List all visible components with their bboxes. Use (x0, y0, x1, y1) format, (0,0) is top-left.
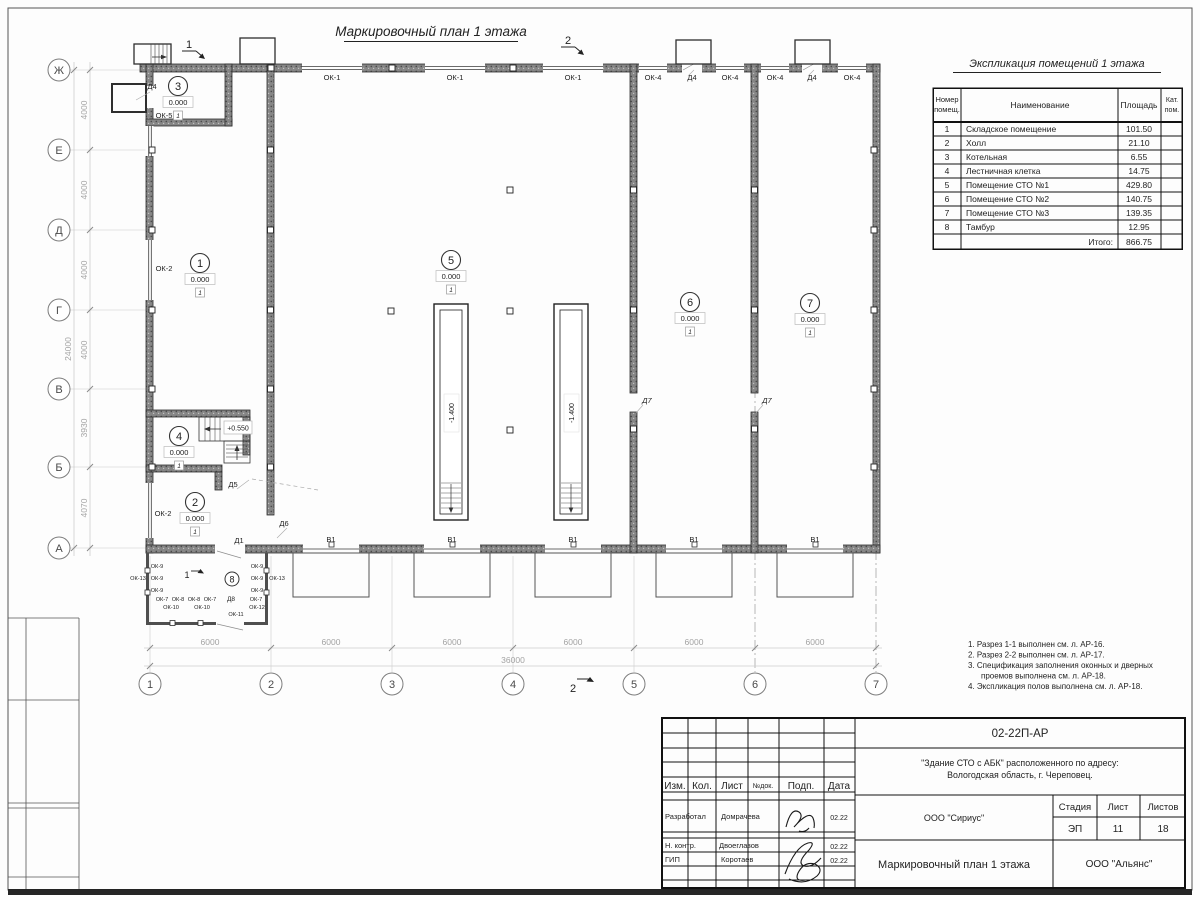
svg-text:Г: Г (56, 305, 62, 317)
room-6-marker: 6 0.000 1 (675, 293, 705, 337)
dim-bay: 6000 (201, 637, 220, 647)
svg-text:Помещение СТО №2: Помещение СТО №2 (966, 194, 1049, 204)
svg-text:2. Разрез 2-2 выполнен см. л.: 2. Разрез 2-2 выполнен см. л. АР-17. (968, 651, 1105, 660)
svg-text:3. Спецификация заполнения око: 3. Спецификация заполнения оконных и две… (968, 661, 1153, 670)
sheet-value: 11 (1113, 824, 1124, 835)
svg-text:429.80: 429.80 (1126, 180, 1152, 190)
doc-number: 02-22П-АР (992, 728, 1049, 740)
svg-text:6: 6 (687, 297, 693, 309)
door-label: Д4 (807, 73, 816, 82)
svg-text:1: 1 (945, 124, 950, 134)
svg-text:2: 2 (268, 679, 274, 691)
dim-bay: 6000 (322, 637, 341, 647)
svg-text:02.22: 02.22 (830, 858, 848, 865)
window-label: ОК-4 (722, 73, 739, 82)
svg-text:2: 2 (570, 683, 576, 695)
svg-text:Складское помещение: Складское помещение (966, 124, 1056, 134)
svg-text:Кол.: Кол. (692, 781, 712, 792)
svg-text:Стадия: Стадия (1059, 802, 1091, 813)
svg-text:0.000: 0.000 (169, 98, 188, 107)
window-label: ОК-2 (155, 509, 172, 518)
svg-text:Маркировочный план 1 этажа: Маркировочный план 1 этажа (335, 24, 527, 39)
svg-text:6: 6 (945, 194, 950, 204)
svg-text:7: 7 (945, 208, 950, 218)
svg-text:В: В (55, 384, 62, 396)
svg-text:Ж: Ж (54, 65, 64, 77)
svg-text:0.000: 0.000 (801, 315, 820, 324)
dim-e-d: 4000 (79, 180, 89, 199)
roof-shaft (676, 40, 711, 64)
dim-g-v: 4000 (79, 340, 89, 359)
window-label: ОК-5 (156, 111, 173, 120)
tambour-labels: ОК-13 ОК-9 ОК-9 ОК-9 ОК-9 ОК-9 ОК-9 ОК-1… (130, 564, 285, 618)
dim-d-g: 4000 (79, 260, 89, 279)
explication-rows: 1Складское помещение101.50 2Холл21.10 3К… (945, 124, 1153, 247)
stage-value: ЭП (1068, 824, 1082, 835)
svg-text:Помещение СТО №3: Помещение СТО №3 (966, 208, 1049, 218)
svg-text:Изм.: Изм. (664, 781, 685, 792)
svg-text:139.35: 139.35 (1126, 208, 1152, 218)
drawing-sheet: 4000 4000 4000 4000 3930 4070 24000 6000… (0, 0, 1200, 900)
svg-text:ОК-9: ОК-9 (151, 588, 164, 594)
explication-headers: Номер помещ. Наименование Площадь Кат. п… (934, 95, 1179, 114)
svg-text:0.000: 0.000 (442, 272, 461, 281)
svg-text:1. Разрез 1-1 выполнен см. л.: 1. Разрез 1-1 выполнен см. л. АР-16. (968, 640, 1105, 649)
pit-depth-label: -1.400 (569, 403, 576, 423)
svg-text:Н. контр.: Н. контр. (665, 841, 696, 850)
room-1-marker: 1 0.000 1 (185, 254, 215, 298)
columns (149, 65, 877, 470)
svg-text:Листов: Листов (1148, 802, 1179, 813)
svg-text:Д: Д (55, 225, 63, 237)
svg-text:5: 5 (631, 679, 637, 691)
door-label: Д8 (227, 596, 235, 603)
svg-text:№док.: №док. (753, 783, 774, 790)
svg-text:ОК-7: ОК-7 (204, 597, 217, 603)
project-line2: Вологодская область, г. Череповец. (947, 770, 1093, 780)
svg-text:Площадь: Площадь (1120, 100, 1158, 110)
section-marks: 1 2 2 1 (182, 35, 594, 695)
svg-text:Помещение СТО №1: Помещение СТО №1 (966, 180, 1049, 190)
room-markers: 1 0.000 1 2 0.000 1 3 0.000 1 4 0.000 1 … (163, 77, 825, 587)
svg-text:Наименование: Наименование (1011, 100, 1070, 110)
explication-total-value: 866.75 (1126, 237, 1152, 247)
window-label: ОК-4 (767, 73, 784, 82)
gate-label: В1 (447, 535, 456, 544)
svg-text:2: 2 (945, 138, 950, 148)
svg-text:Лист: Лист (721, 781, 743, 792)
explication-table: Экспликация помещений 1 этажа Номер поме… (933, 58, 1182, 249)
svg-text:+0.550: +0.550 (227, 426, 249, 433)
svg-text:12.95: 12.95 (1128, 222, 1150, 232)
svg-text:02.22: 02.22 (830, 844, 848, 851)
svg-text:7: 7 (873, 679, 879, 691)
door-label: Д1 (234, 536, 243, 545)
title-block: Изм. Кол. Лист №док. Подп. Дата Разработ… (662, 718, 1185, 888)
gate-label: В1 (810, 535, 819, 544)
svg-text:5: 5 (448, 255, 454, 267)
room-2-marker: 2 0.000 1 (180, 493, 210, 537)
svg-text:3: 3 (945, 152, 950, 162)
window-label: ОК-2 (156, 264, 173, 273)
gate-label: В1 (326, 535, 335, 544)
svg-text:Номер: Номер (935, 95, 958, 104)
room-4-marker: 4 0.000 1 (164, 427, 194, 471)
svg-text:ОК-13: ОК-13 (130, 576, 146, 582)
svg-text:Лист: Лист (1108, 802, 1129, 813)
svg-text:1: 1 (197, 258, 203, 270)
door-label: Д4 (147, 82, 156, 91)
dim-bay: 6000 (564, 637, 583, 647)
svg-text:1: 1 (184, 570, 189, 580)
door-label: Д7 (761, 396, 772, 405)
svg-text:7: 7 (807, 298, 813, 310)
roof-shaft (240, 38, 275, 64)
exterior-stair (134, 44, 171, 64)
explication-title: Экспликация помещений 1 этажа (969, 58, 1144, 70)
dim-bay: 6000 (443, 637, 462, 647)
svg-text:1: 1 (198, 290, 202, 297)
svg-text:Дата: Дата (828, 781, 851, 792)
dim-left-total: 24000 (63, 337, 73, 361)
window-label: ОК-4 (645, 73, 662, 82)
sheets-value: 18 (1157, 824, 1169, 835)
door-label: Д4 (687, 73, 696, 82)
stair-arrow-down (235, 445, 240, 451)
svg-text:ГИП: ГИП (665, 855, 680, 864)
svg-text:1: 1 (688, 329, 692, 336)
svg-text:ОК-9: ОК-9 (151, 576, 164, 582)
svg-text:ОК-7: ОК-7 (156, 597, 169, 603)
svg-text:0.000: 0.000 (681, 314, 700, 323)
svg-text:ОК-13: ОК-13 (269, 576, 285, 582)
svg-text:101.50: 101.50 (1126, 124, 1152, 134)
gate-aprons (293, 553, 853, 597)
pit-depth-label: -1.400 (449, 403, 456, 423)
svg-text:2: 2 (192, 497, 198, 509)
gate-label: В1 (689, 535, 698, 544)
room-5-marker: 5 0.000 1 (436, 251, 466, 295)
svg-text:5: 5 (945, 180, 950, 190)
inspection-pit-2: -1.400 (554, 304, 588, 520)
dim-bay: 6000 (806, 637, 825, 647)
svg-text:4: 4 (510, 679, 516, 691)
svg-text:Е: Е (55, 145, 62, 157)
dim-zh-e: 4000 (79, 100, 89, 119)
svg-text:ОК-9: ОК-9 (251, 576, 264, 582)
svg-text:Двоеглазов: Двоеглазов (719, 841, 759, 850)
drawing-title: Маркировочный план 1 этажа (878, 859, 1031, 871)
explication-total-label: Итого: (1088, 237, 1113, 247)
axis-letters: Ж Е Д Г В Б А (48, 59, 70, 559)
label-leaders (136, 70, 814, 538)
svg-text:0.000: 0.000 (191, 275, 210, 284)
window-label: ОК-1 (324, 73, 341, 82)
svg-text:21.10: 21.10 (1128, 138, 1150, 148)
svg-text:ОК-10: ОК-10 (163, 605, 179, 611)
svg-text:02.22: 02.22 (830, 815, 848, 822)
svg-text:ОК-12: ОК-12 (249, 605, 265, 611)
svg-text:Коротаев: Коротаев (721, 855, 753, 864)
svg-text:А: А (55, 543, 63, 555)
plan-title: Маркировочный план 1 этажа (335, 24, 527, 42)
svg-text:3: 3 (389, 679, 395, 691)
inspection-pit-1: -1.400 (434, 304, 468, 520)
svg-text:4: 4 (945, 166, 950, 176)
window-label: ОК-1 (565, 73, 582, 82)
gate-label: В1 (568, 535, 577, 544)
project-line1: "Здание СТО с АБК" расположенного по адр… (921, 758, 1119, 768)
svg-text:1: 1 (177, 463, 181, 470)
svg-text:1: 1 (176, 113, 180, 120)
svg-text:3: 3 (175, 81, 181, 93)
org2: ООО "Альянс" (1086, 859, 1153, 870)
svg-text:ОК-7: ОК-7 (250, 597, 263, 603)
svg-text:14.75: 14.75 (1128, 166, 1150, 176)
room-7-marker: 7 0.000 1 (795, 294, 825, 338)
svg-text:0.000: 0.000 (170, 448, 189, 457)
svg-text:6.55: 6.55 (1131, 152, 1148, 162)
stair-landing-elevation: +0.550 (224, 421, 252, 434)
svg-text:2: 2 (565, 35, 571, 47)
door-label: Д7 (641, 396, 652, 405)
window-label: ОК-1 (447, 73, 464, 82)
door-swing-dashed (252, 479, 318, 490)
door-label: Д6 (279, 519, 288, 528)
svg-text:Тамбур: Тамбур (966, 222, 995, 232)
svg-text:8: 8 (229, 575, 234, 585)
room-8-marker: 8 (225, 572, 239, 586)
org1: ООО "Сириус" (924, 813, 984, 823)
door-label: Д5 (228, 480, 237, 489)
dim-b-a: 4070 (79, 498, 89, 517)
svg-text:6: 6 (752, 679, 758, 691)
dim-total: 36000 (501, 655, 525, 665)
svg-text:ОК-10: ОК-10 (194, 605, 210, 611)
svg-text:0.000: 0.000 (186, 514, 205, 523)
svg-text:ОК-9: ОК-9 (251, 588, 264, 594)
svg-text:1: 1 (193, 529, 197, 536)
dim-v-b: 3930 (79, 418, 89, 437)
svg-text:Холл: Холл (966, 138, 986, 148)
svg-text:Б: Б (55, 462, 62, 474)
svg-text:ОК-9: ОК-9 (151, 564, 164, 570)
svg-text:Подп.: Подп. (788, 781, 815, 792)
svg-text:ОК-9: ОК-9 (251, 564, 264, 570)
svg-text:4. Экспликация полов выполнена: 4. Экспликация полов выполнена см. л. АР… (968, 682, 1142, 691)
notes: 1. Разрез 1-1 выполнен см. л. АР-16. 2. … (968, 640, 1153, 691)
left-stamp-boxes (8, 618, 79, 889)
svg-text:1: 1 (186, 39, 192, 51)
entrance-vestibule (112, 84, 146, 112)
svg-text:140.75: 140.75 (1126, 194, 1152, 204)
svg-text:1: 1 (808, 330, 812, 337)
roof-shaft (795, 40, 830, 64)
door-leaves (217, 61, 819, 558)
svg-text:8: 8 (945, 222, 950, 232)
svg-text:ОК-8: ОК-8 (172, 597, 185, 603)
svg-text:Котельная: Котельная (966, 152, 1008, 162)
svg-text:пом.: пом. (1165, 107, 1179, 114)
svg-text:Кат.: Кат. (1166, 97, 1178, 104)
svg-text:1: 1 (147, 679, 153, 691)
svg-text:проемов выполнена см. л. АР-18: проемов выполнена см. л. АР-18. (981, 672, 1106, 681)
axis-numbers: 1 2 3 4 5 6 7 (139, 673, 887, 695)
svg-text:Домрачева: Домрачева (721, 812, 761, 821)
svg-text:помещ.: помещ. (934, 105, 960, 114)
dim-bay: 6000 (685, 637, 704, 647)
svg-text:1: 1 (449, 287, 453, 294)
svg-text:ОК-11: ОК-11 (228, 612, 243, 618)
svg-text:4: 4 (176, 431, 182, 443)
svg-text:Разработал: Разработал (665, 812, 706, 821)
svg-text:ОК-8: ОК-8 (188, 597, 201, 603)
svg-text:Лестничная клетка: Лестничная клетка (966, 166, 1041, 176)
window-label: ОК-4 (844, 73, 861, 82)
